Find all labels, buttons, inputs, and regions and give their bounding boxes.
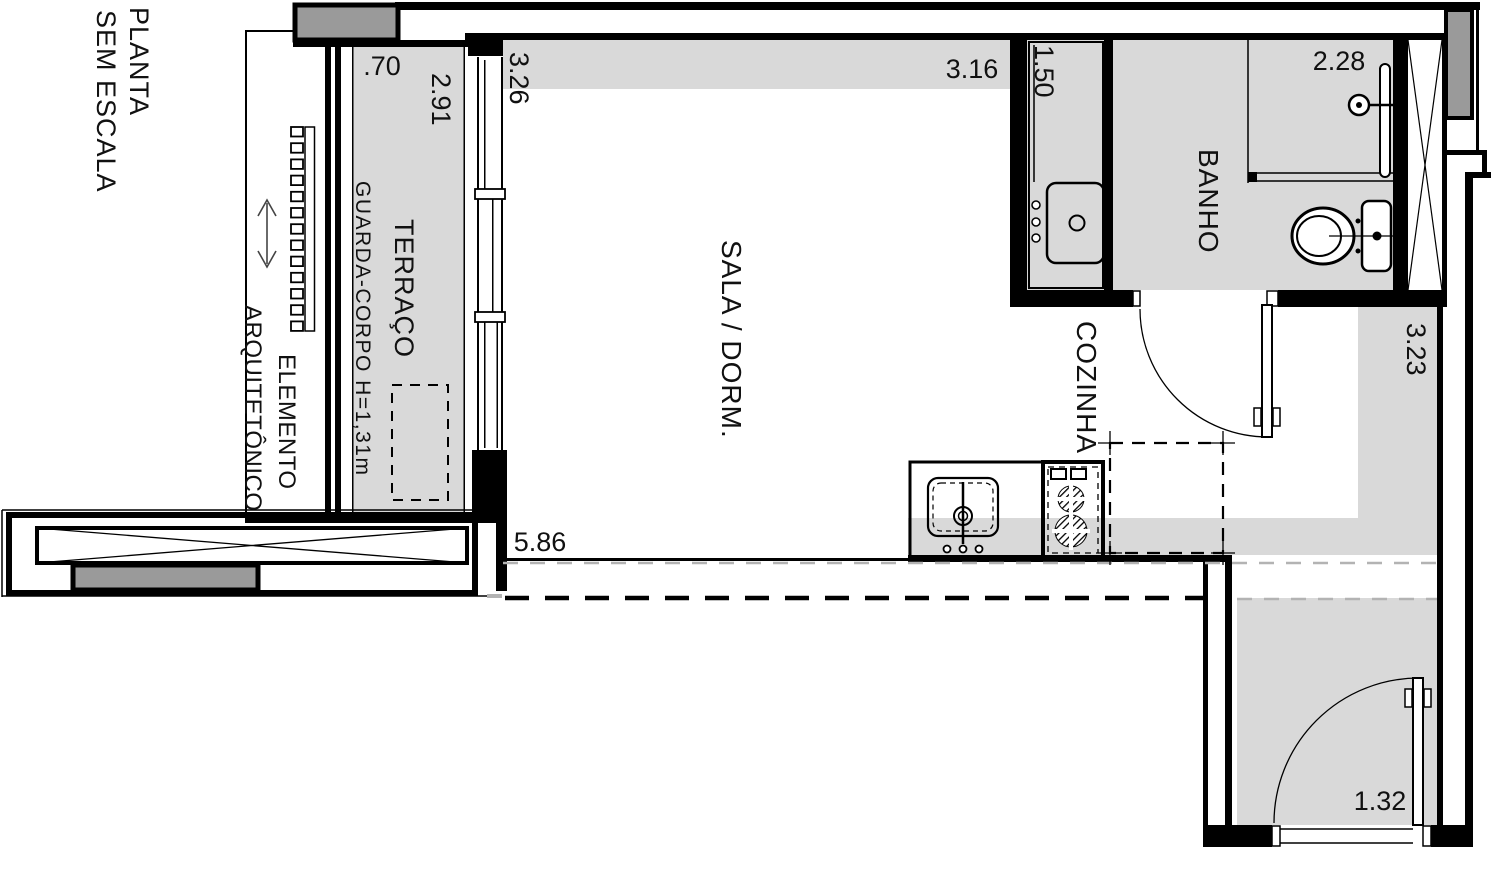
door-handle-icon (1405, 689, 1412, 707)
dim-sala-depth: 3.26 (504, 52, 534, 105)
bottom-left-wing (2, 510, 502, 598)
door-handle-icon (1424, 689, 1431, 707)
banho-door-leaf (1262, 305, 1272, 437)
door-handle-icon (1273, 408, 1280, 426)
wall-ne-notch-1 (1447, 150, 1485, 155)
room-label-banho: BANHO (1193, 149, 1224, 254)
column-top-right (1446, 10, 1472, 118)
banho-floor (1113, 40, 1393, 290)
wall-sala-east (1010, 33, 1027, 307)
shower-glass (1380, 64, 1390, 177)
wing-gray-tick (487, 594, 502, 598)
floor-plan: PLANTA SEM ESCALA ELEMENTO ARQUITETÔNICO… (0, 0, 1493, 871)
dim-banho-width: 2.28 (1313, 46, 1366, 76)
wall-hall-west-inner (1225, 555, 1232, 847)
sala-south-sill (503, 558, 908, 561)
floor-plan-drawing: PLANTA SEM ESCALA ELEMENTO ARQUITETÔNICO… (0, 0, 1493, 871)
dim-hall-width: 1.32 (1354, 786, 1407, 816)
wall-east-outer (1465, 178, 1473, 847)
column-top-left (295, 5, 398, 40)
dim-sala-length: 5.86 (514, 527, 567, 557)
wall-entry-right (1431, 825, 1473, 847)
wall-ne-notch-3 (1465, 172, 1491, 178)
dim-sala-width: 3.16 (946, 54, 999, 84)
guarda-corpo-label: GUARDA-CORPO H=1,31m (351, 181, 374, 476)
sala-ceiling-band (503, 40, 1010, 89)
wall-ne-outer-line (1476, 2, 1479, 154)
banho-door (1140, 305, 1280, 437)
plan-title-line1: PLANTA (124, 7, 154, 116)
wall-counter-banho (1104, 37, 1113, 307)
sliding-door (475, 57, 505, 450)
wall-sala-west-stub-top (468, 33, 503, 56)
room-label-cozinha: COZINHA (1071, 321, 1102, 454)
wall-entry-left (1203, 825, 1272, 847)
wall-banho-east (1393, 33, 1408, 307)
jamb-entry-right (1423, 826, 1431, 846)
elemento-label-line2: ARQUITETÔNICO (239, 305, 267, 512)
entry-threshold (1280, 829, 1413, 843)
jamb-entry-left (1272, 826, 1280, 846)
jamb-banho-left (1133, 291, 1140, 306)
wall-hall-east-inner (1437, 307, 1443, 825)
wall-sala-west-lower (496, 450, 507, 591)
wall-hall-west-outer (1203, 560, 1208, 847)
room-label-sala: SALA / DORM. (716, 240, 747, 439)
wall-terrace-west-1 (325, 32, 331, 515)
banho-door-swing (1140, 309, 1268, 437)
hall-floor-lower (1237, 598, 1437, 825)
elemento-arquitetonico (258, 127, 315, 331)
shaft-duct (1408, 40, 1442, 290)
wall-banho-south-right (1278, 290, 1443, 307)
floor-fills (352, 40, 1437, 825)
wall-top-outer (395, 2, 1480, 10)
entry-door-leaf (1413, 678, 1423, 825)
door-handle-icon (1254, 408, 1261, 426)
dim-hall-length: 3.23 (1401, 323, 1431, 376)
double-arrow-icon (258, 200, 276, 267)
wing-column (73, 565, 258, 590)
dim-terraco-width: .70 (363, 51, 401, 81)
louver-rail (305, 127, 315, 331)
wall-terrace-west-2 (335, 32, 341, 515)
wall-banho-south-left (1010, 290, 1133, 307)
dim-terraco-length: 2.91 (426, 73, 456, 126)
terrace-edge-right (464, 47, 466, 514)
projection-lines (503, 563, 1437, 599)
room-label-terraco: TERRAÇO (389, 219, 419, 358)
plan-title-line2: SEM ESCALA (91, 10, 121, 193)
wall-top-inner (465, 33, 1445, 40)
jamb-banho-right (1267, 291, 1278, 306)
elemento-label-line1: ELEMENTO (273, 354, 300, 490)
dim-bancada-length: 1.50 (1029, 45, 1059, 98)
